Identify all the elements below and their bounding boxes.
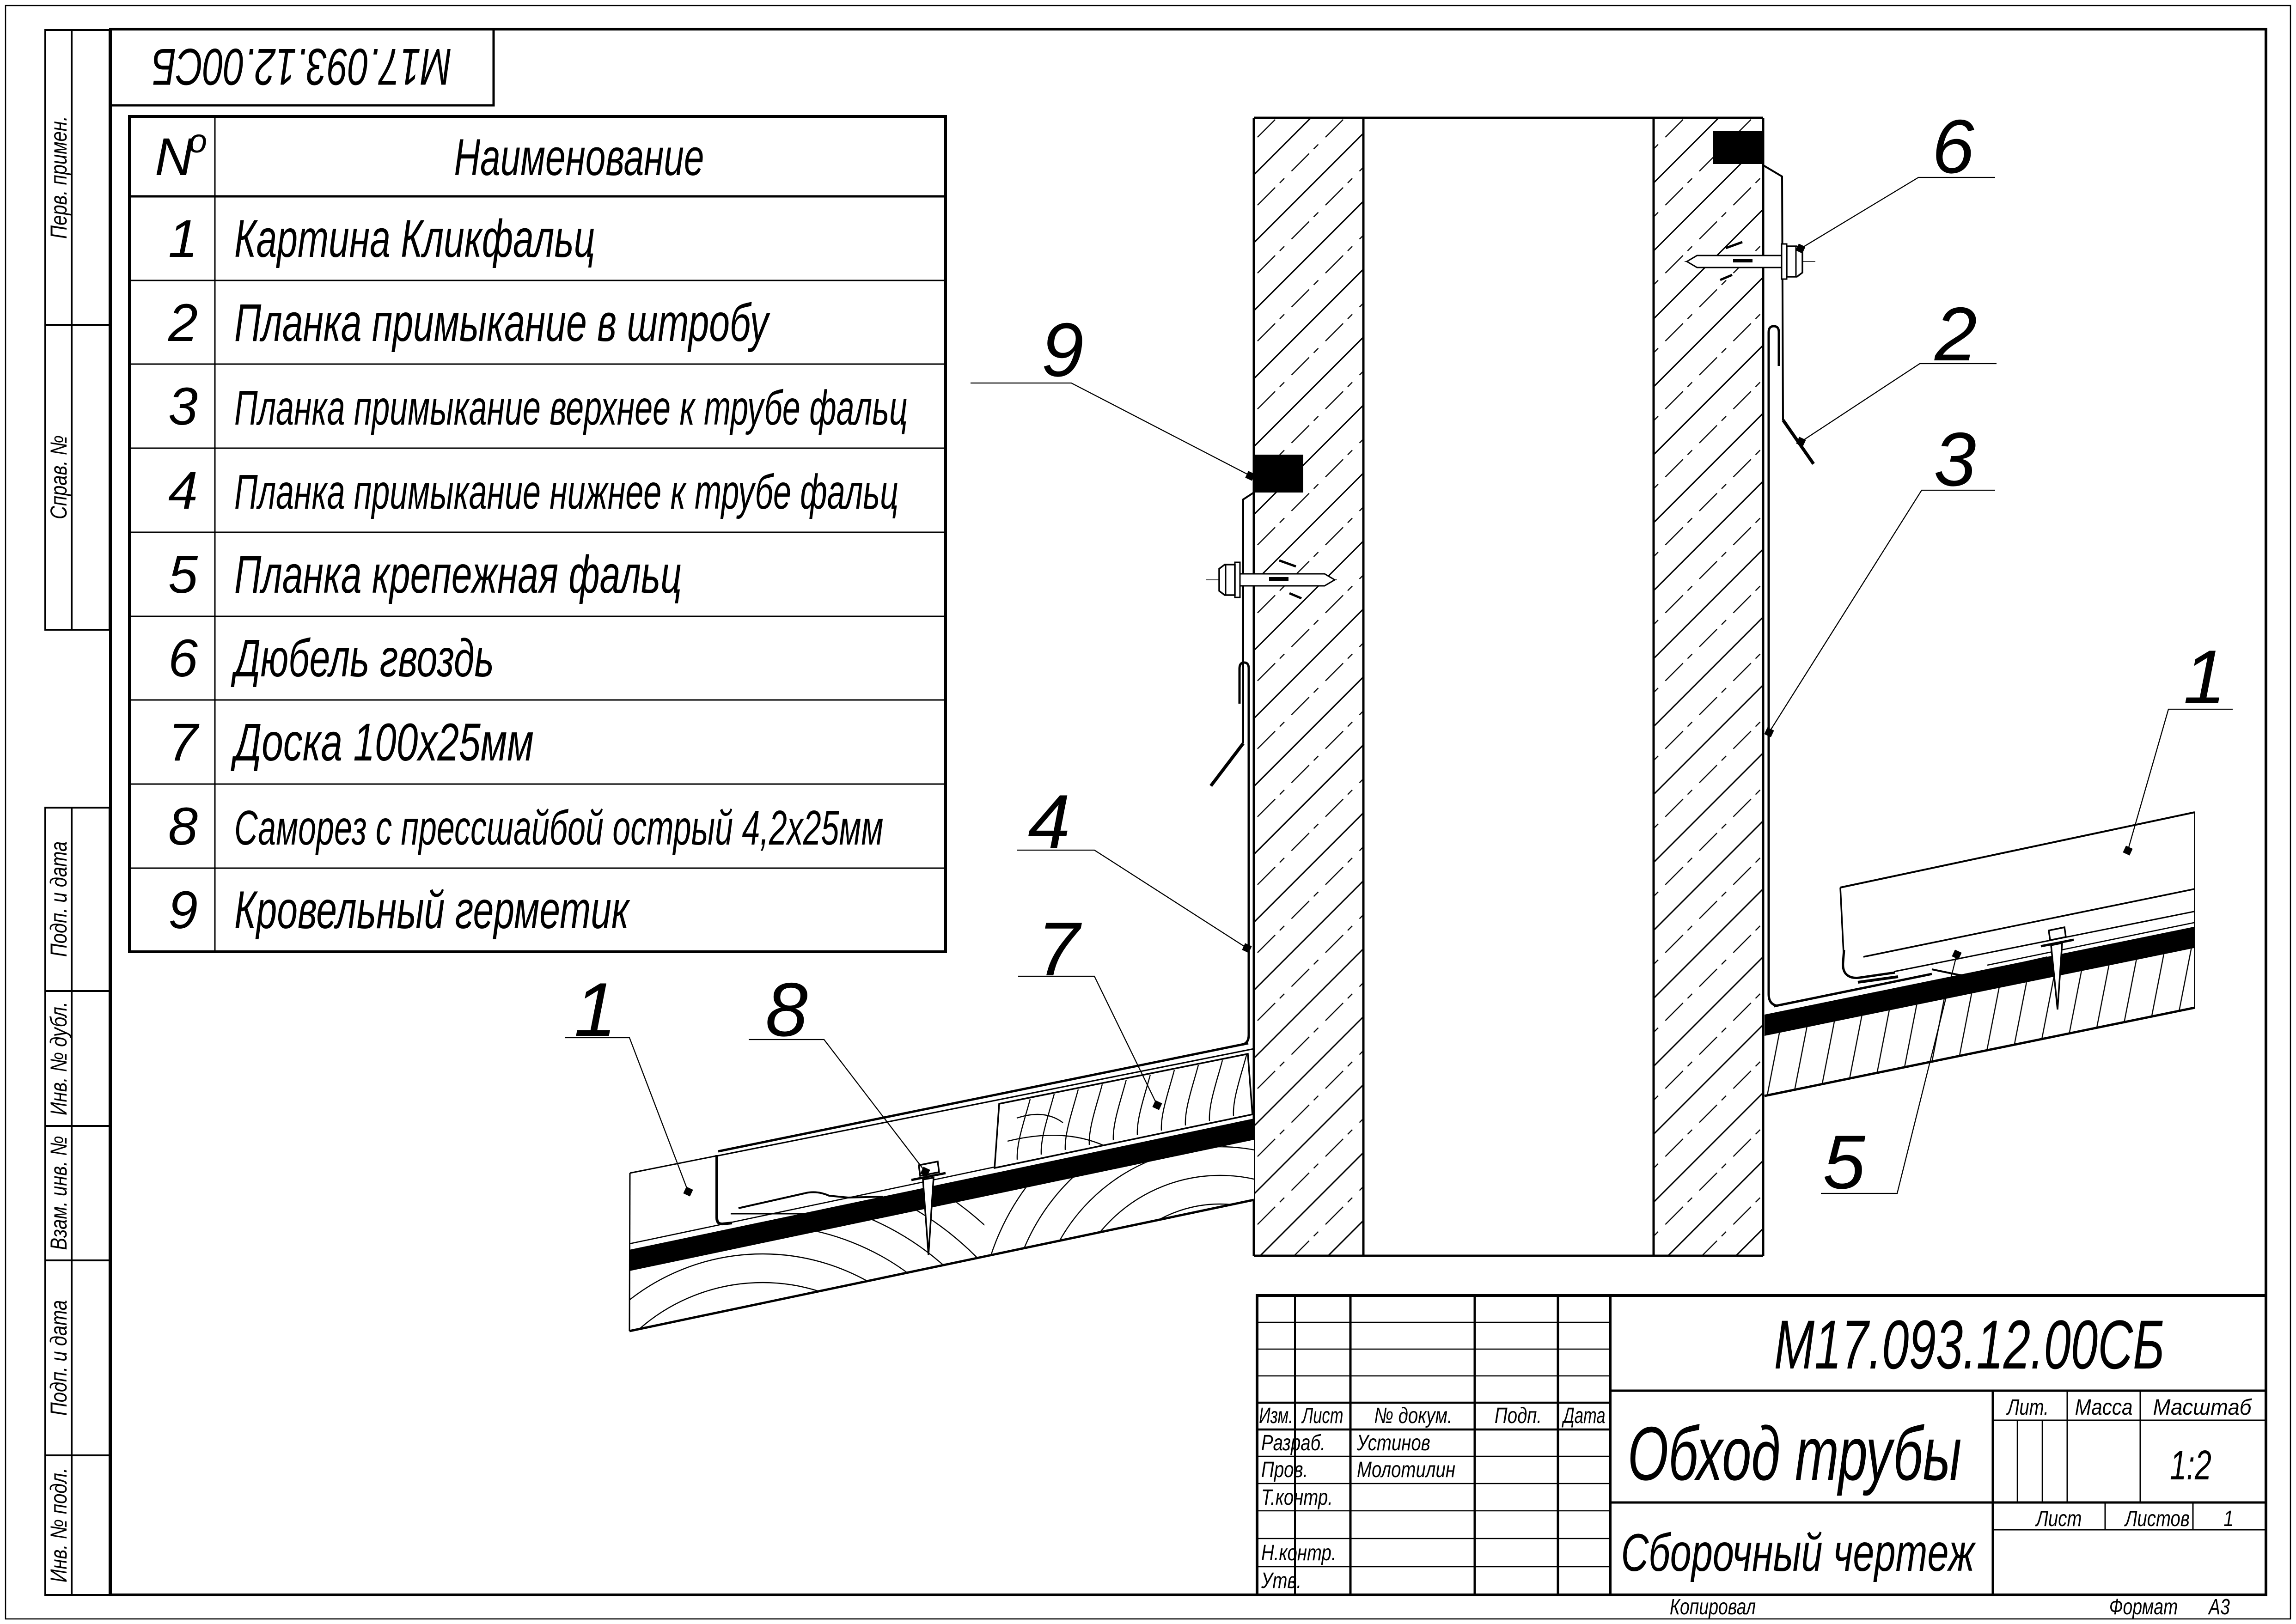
- svg-text:Н.контр.: Н.контр.: [1261, 1541, 1337, 1565]
- svg-text:Планка крепежная фальц: Планка крепежная фальц: [234, 545, 682, 605]
- svg-text:Планка примыкание в штробу: Планка примыкание в штробу: [234, 293, 770, 353]
- svg-text:Масса: Масса: [2075, 1394, 2133, 1419]
- svg-text:2: 2: [1934, 292, 1977, 377]
- svg-text:Кровельный герметик: Кровельный герметик: [234, 881, 630, 940]
- svg-text:Наименование: Наименование: [454, 128, 704, 186]
- svg-text:o: o: [189, 123, 207, 160]
- svg-text:6: 6: [168, 629, 198, 688]
- svg-text:Пров.: Пров.: [1261, 1458, 1308, 1482]
- svg-text:5: 5: [168, 545, 198, 604]
- svg-text:1: 1: [2183, 634, 2226, 719]
- svg-text:7: 7: [1037, 906, 1082, 991]
- svg-text:М17.093.12.00СБ: М17.093.12.00СБ: [1774, 1307, 2165, 1384]
- svg-text:Масштаб: Масштаб: [2153, 1395, 2253, 1419]
- svg-text:3: 3: [168, 377, 198, 436]
- svg-text:Доска 100х25мм: Доска 100х25мм: [231, 713, 534, 772]
- svg-text:Лист: Лист: [2035, 1507, 2082, 1531]
- svg-text:8: 8: [168, 797, 198, 856]
- svg-text:1: 1: [168, 209, 198, 268]
- svg-text:Планка примыкание нижнее к тру: Планка примыкание нижнее к трубе фальц: [234, 465, 898, 520]
- svg-text:7: 7: [168, 713, 200, 772]
- svg-text:Взам. инв. №: Взам. инв. №: [46, 1136, 72, 1250]
- svg-text:Подп. и дата: Подп. и дата: [46, 1300, 72, 1416]
- svg-text:Изм.: Изм.: [1259, 1403, 1293, 1428]
- svg-text:1: 1: [574, 967, 617, 1052]
- svg-text:Дюбель гвоздь: Дюбель гвоздь: [231, 629, 494, 688]
- svg-text:Разраб.: Разраб.: [1261, 1431, 1325, 1455]
- svg-text:4: 4: [1028, 779, 1070, 864]
- svg-text:4: 4: [168, 461, 198, 520]
- svg-text:Дата: Дата: [1562, 1403, 1605, 1428]
- svg-text:5: 5: [1823, 1119, 1866, 1204]
- svg-text:Обход трубы: Обход трубы: [1628, 1411, 1962, 1496]
- svg-text:N: N: [155, 128, 194, 187]
- svg-text:9: 9: [168, 881, 198, 940]
- svg-text:Подп. и дата: Подп. и дата: [46, 841, 72, 957]
- svg-text:1:2: 1:2: [2170, 1442, 2211, 1489]
- svg-text:Картина Кликфальц: Картина Кликфальц: [234, 209, 595, 269]
- svg-text:2: 2: [168, 293, 198, 353]
- svg-text:Копировал: Копировал: [1670, 1595, 1756, 1620]
- svg-text:М17.093.12.00СБ: М17.093.12.00СБ: [152, 38, 452, 96]
- svg-text:Лист: Лист: [1301, 1403, 1343, 1428]
- svg-text:Инв. № дубл.: Инв. № дубл.: [46, 1002, 72, 1115]
- svg-text:А3: А3: [2207, 1595, 2229, 1620]
- svg-text:№ докум.: № докум.: [1374, 1404, 1452, 1428]
- svg-text:6: 6: [1932, 104, 1974, 189]
- svg-text:Устинов: Устинов: [1356, 1431, 1430, 1455]
- svg-text:3: 3: [1934, 417, 1976, 502]
- svg-text:Справ. №: Справ. №: [46, 435, 72, 519]
- svg-text:8: 8: [765, 967, 808, 1052]
- svg-text:Лит.: Лит.: [2006, 1395, 2049, 1420]
- svg-text:Утв.: Утв.: [1261, 1569, 1301, 1593]
- svg-text:Формат: Формат: [2109, 1595, 2178, 1620]
- svg-text:Т.контр.: Т.контр.: [1261, 1485, 1333, 1510]
- svg-text:Сборочный чертеж: Сборочный чертеж: [1621, 1523, 1976, 1583]
- svg-text:Листов: Листов: [2124, 1507, 2189, 1531]
- svg-text:9: 9: [1041, 307, 1084, 392]
- svg-text:Молотилин: Молотилин: [1357, 1458, 1455, 1482]
- svg-text:Планка примыкание верхнее к тр: Планка примыкание верхнее к трубе фальц: [234, 381, 908, 436]
- svg-text:1: 1: [2223, 1507, 2233, 1531]
- svg-text:Подп.: Подп.: [1495, 1404, 1542, 1428]
- svg-text:Инв. № подл.: Инв. № подл.: [46, 1468, 72, 1582]
- svg-text:Перв. примен.: Перв. примен.: [46, 116, 72, 239]
- svg-text:Саморез с прессшайбой острый 4: Саморез с прессшайбой острый 4,2х25мм: [234, 801, 883, 856]
